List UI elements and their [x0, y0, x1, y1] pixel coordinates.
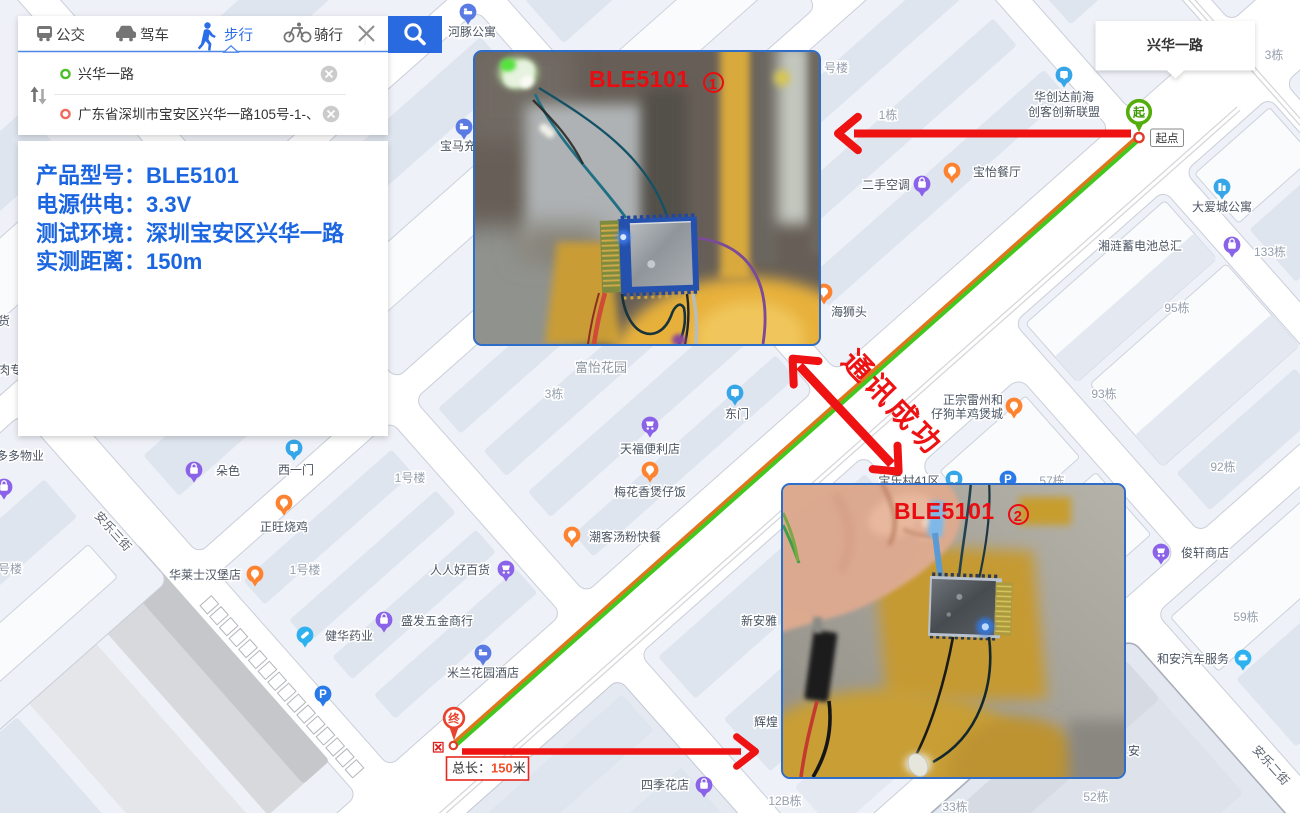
svg-text:总长：150米: 总长：150米 [452, 761, 526, 776]
svg-text:俊轩商店: 俊轩商店 [1181, 545, 1229, 560]
svg-text:仔狗羊鸡煲城: 仔狗羊鸡煲城 [931, 406, 1003, 421]
svg-text:兴华一路: 兴华一路 [78, 66, 134, 82]
svg-text:1号楼: 1号楼 [290, 562, 321, 577]
svg-text:海狮头: 海狮头 [831, 304, 867, 319]
svg-text:3栋: 3栋 [545, 386, 564, 401]
svg-text:P: P [319, 689, 327, 701]
svg-text:四季花店: 四季花店 [641, 777, 689, 792]
svg-text:92栋: 92栋 [1210, 459, 1235, 474]
svg-text:潮客汤粉快餐: 潮客汤粉快餐 [589, 529, 661, 544]
svg-text:盛发五金商行: 盛发五金商行 [401, 613, 473, 628]
svg-text:起点: 起点 [1156, 132, 1179, 145]
svg-text:号楼: 号楼 [0, 561, 22, 576]
svg-text:1号楼: 1号楼 [395, 470, 426, 485]
svg-text:大爱城公寓: 大爱城公寓 [1192, 199, 1252, 214]
svg-text:52栋: 52栋 [1083, 789, 1108, 804]
svg-text:3栋: 3栋 [1265, 47, 1284, 62]
svg-text:多多物业: 多多物业 [0, 449, 44, 463]
svg-text:富怡花园: 富怡花园 [575, 360, 627, 375]
svg-text:和安汽车服务: 和安汽车服务 [1157, 651, 1229, 666]
svg-text:西一门: 西一门 [278, 462, 314, 477]
svg-text:93栋: 93栋 [1091, 386, 1116, 401]
svg-text:创客创新联盟: 创客创新联盟 [1028, 104, 1100, 119]
svg-text:兴华一路: 兴华一路 [1147, 37, 1204, 53]
svg-text:驾车: 驾车 [140, 27, 169, 44]
svg-text:辉煌: 辉煌 [754, 715, 778, 729]
svg-text:人人好百货: 人人好百货 [430, 562, 490, 577]
svg-text:133栋: 133栋 [1254, 244, 1286, 259]
svg-text:59栋: 59栋 [1233, 609, 1258, 624]
svg-text:宝怡餐厅: 宝怡餐厅 [973, 164, 1021, 179]
svg-text:安: 安 [1128, 743, 1140, 758]
svg-text:货: 货 [0, 313, 10, 328]
svg-text:梅花香煲仔饭: 梅花香煲仔饭 [614, 484, 686, 499]
svg-text:华莱士汉堡店: 华莱士汉堡店 [169, 567, 241, 582]
svg-text:骑行: 骑行 [314, 27, 343, 44]
svg-text:1栋: 1栋 [879, 107, 898, 122]
svg-text:号楼: 号楼 [824, 60, 848, 75]
svg-text:起: 起 [1132, 105, 1146, 120]
svg-text:正旺烧鸡: 正旺烧鸡 [260, 519, 308, 534]
svg-text:湘涟蓄电池总汇: 湘涟蓄电池总汇 [1098, 238, 1182, 253]
svg-text:12B栋: 12B栋 [768, 793, 801, 808]
svg-text:天福便利店: 天福便利店 [620, 441, 680, 456]
svg-text:正宗雷州和: 正宗雷州和 [943, 392, 1003, 407]
svg-text:河豚公寓: 河豚公寓 [448, 24, 496, 39]
svg-text:华创达前海: 华创达前海 [1034, 89, 1094, 104]
svg-text:33栋: 33栋 [942, 799, 967, 813]
svg-text:新安雅: 新安雅 [741, 613, 777, 628]
svg-text:步行: 步行 [224, 27, 253, 44]
svg-text:二手空调: 二手空调 [862, 178, 910, 192]
svg-text:米兰花园酒店: 米兰花园酒店 [447, 665, 519, 680]
svg-text:健华药业: 健华药业 [325, 629, 373, 643]
svg-text:东门: 东门 [725, 406, 749, 421]
svg-text:广东省深圳市宝安区兴华一路105号-1-、: 广东省深圳市宝安区兴华一路105号-1-、 [78, 106, 320, 122]
svg-text:公交: 公交 [56, 26, 85, 44]
svg-text:终: 终 [448, 712, 460, 726]
svg-text:95栋: 95栋 [1164, 300, 1189, 315]
svg-text:朵色: 朵色 [216, 464, 240, 478]
